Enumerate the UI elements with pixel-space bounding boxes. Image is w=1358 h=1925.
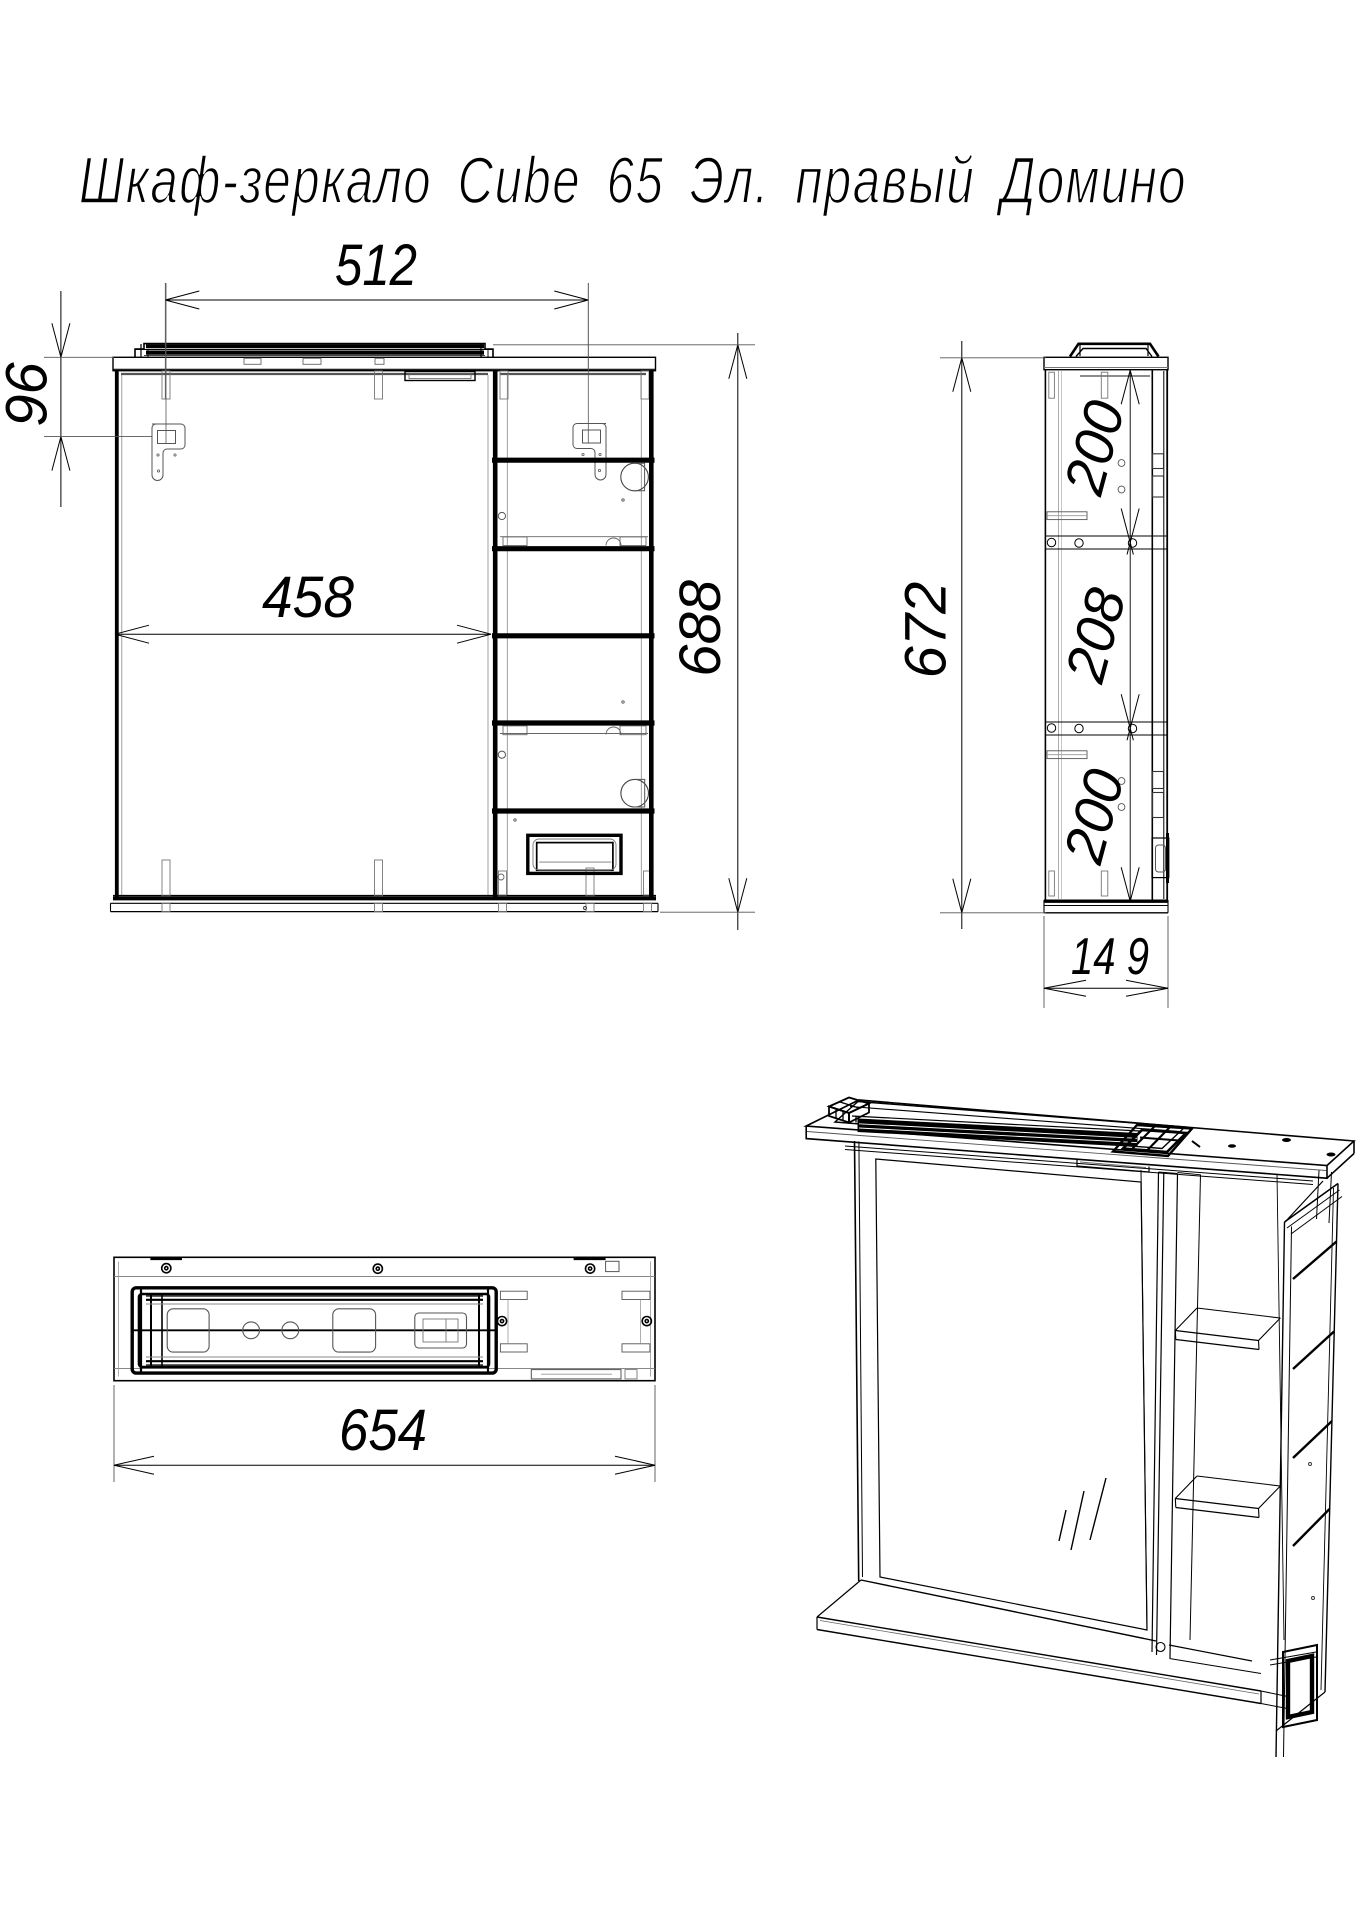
svg-text:14 9: 14 9	[1071, 928, 1149, 986]
svg-text:654: 654	[339, 1398, 427, 1463]
svg-text:458: 458	[262, 565, 354, 630]
svg-text:512: 512	[335, 233, 417, 298]
svg-text:Шкаф-зеркало Cube 65 Эл. правы: Шкаф-зеркало Cube 65 Эл. правый Домино	[79, 143, 1187, 217]
svg-text:672: 672	[894, 582, 959, 679]
svg-text:96: 96	[0, 362, 60, 427]
svg-text:688: 688	[668, 580, 733, 677]
